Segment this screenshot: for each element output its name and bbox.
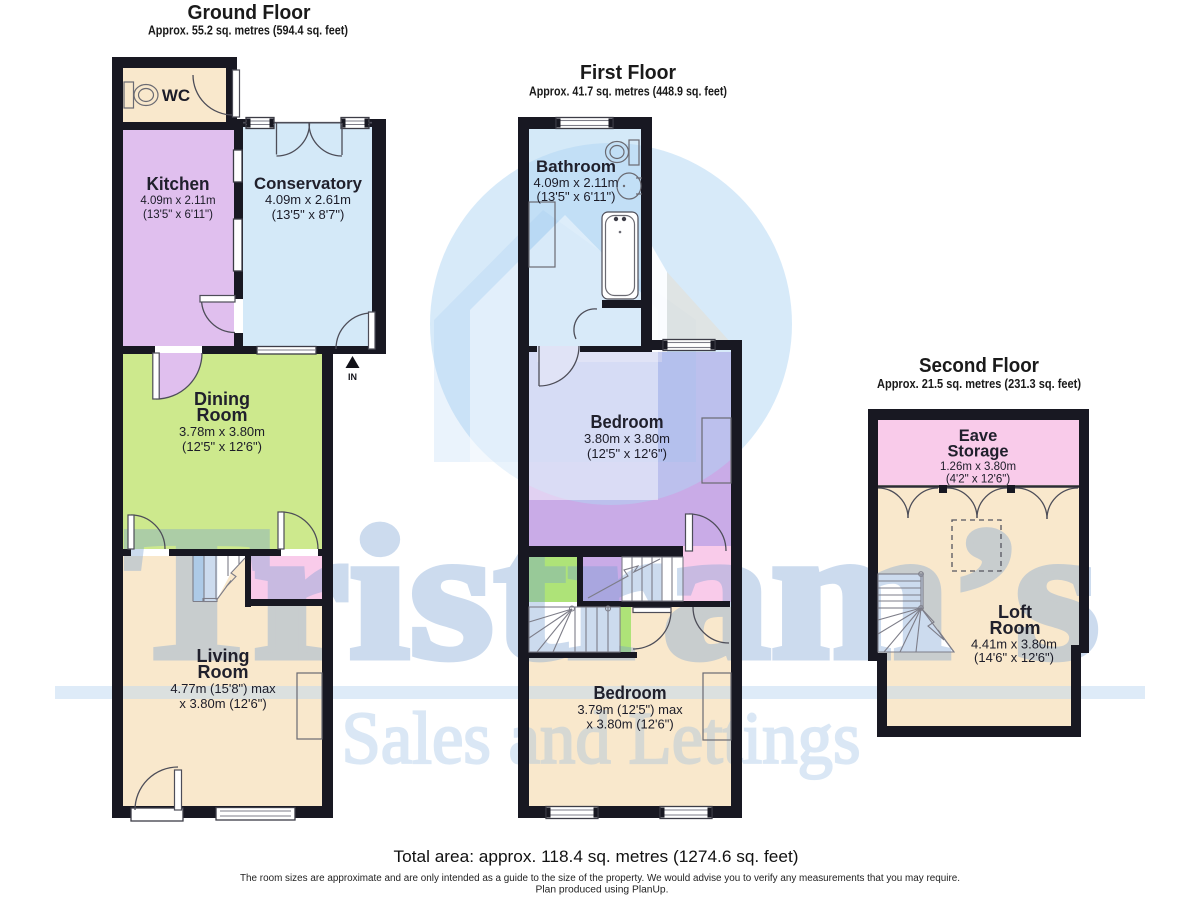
svg-text:Room: Room	[990, 618, 1041, 638]
svg-text:4.09m x 2.11m: 4.09m x 2.11m	[533, 175, 618, 190]
svg-text:3.78m x 3.80m: 3.78m x 3.80m	[179, 424, 265, 439]
svg-text:4.09m x 2.11m: 4.09m x 2.11m	[140, 195, 215, 207]
svg-text:Storage: Storage	[948, 443, 1009, 461]
svg-text:4.77m (15'8") max: 4.77m (15'8") max	[170, 681, 276, 696]
svg-text:Room: Room	[198, 662, 249, 682]
svg-text:First Floor: First Floor	[580, 62, 676, 84]
svg-text:IN: IN	[348, 372, 357, 382]
svg-text:(13'5" x 6'11"): (13'5" x 6'11")	[143, 209, 213, 221]
svg-text:(12'5" x 12'6"): (12'5" x 12'6")	[182, 439, 262, 454]
svg-text:The room sizes are approximate: The room sizes are approximate and are o…	[240, 873, 960, 884]
svg-text:Bedroom: Bedroom	[591, 412, 664, 432]
svg-text:Second Floor: Second Floor	[919, 355, 1039, 377]
svg-text:(13'5" x 8'7"): (13'5" x 8'7")	[272, 207, 345, 222]
svg-text:Ground Floor: Ground Floor	[188, 2, 311, 24]
svg-text:Bedroom: Bedroom	[594, 683, 667, 703]
svg-text:Bathroom: Bathroom	[536, 158, 616, 176]
svg-text:Plan produced using PlanUp.: Plan produced using PlanUp.	[536, 885, 669, 896]
svg-text:Kitchen: Kitchen	[147, 174, 210, 194]
svg-text:Conservatory: Conservatory	[254, 175, 363, 193]
svg-text:(13'5" x 6'11"): (13'5" x 6'11")	[537, 189, 616, 204]
svg-text:3.80m x 3.80m: 3.80m x 3.80m	[584, 431, 670, 446]
svg-text:Approx. 21.5 sq. metres (231.3: Approx. 21.5 sq. metres (231.3 sq. feet)	[877, 377, 1081, 391]
svg-text:Approx. 41.7 sq. metres (448.9: Approx. 41.7 sq. metres (448.9 sq. feet)	[529, 85, 727, 99]
svg-text:(14'6" x 12'6"): (14'6" x 12'6")	[974, 650, 1054, 665]
svg-text:WC: WC	[162, 86, 190, 105]
svg-text:x 3.80m (12'6"): x 3.80m (12'6")	[179, 696, 266, 711]
svg-text:x 3.80m (12'6"): x 3.80m (12'6")	[586, 717, 673, 732]
svg-text:Room: Room	[197, 405, 248, 425]
svg-text:3.79m (12'5") max: 3.79m (12'5") max	[577, 702, 683, 717]
svg-text:1.26m x 3.80m: 1.26m x 3.80m	[940, 461, 1016, 473]
svg-text:Total area: approx. 118.4 sq.: Total area: approx. 118.4 sq. metres (12…	[394, 848, 799, 866]
svg-text:4.09m x 2.61m: 4.09m x 2.61m	[265, 192, 351, 207]
svg-text:(12'5" x 12'6"): (12'5" x 12'6")	[587, 446, 667, 461]
svg-text:Approx. 55.2 sq. metres (594.4: Approx. 55.2 sq. metres (594.4 sq. feet)	[148, 24, 348, 38]
svg-text:(4'2" x 12'6"): (4'2" x 12'6")	[946, 474, 1011, 486]
